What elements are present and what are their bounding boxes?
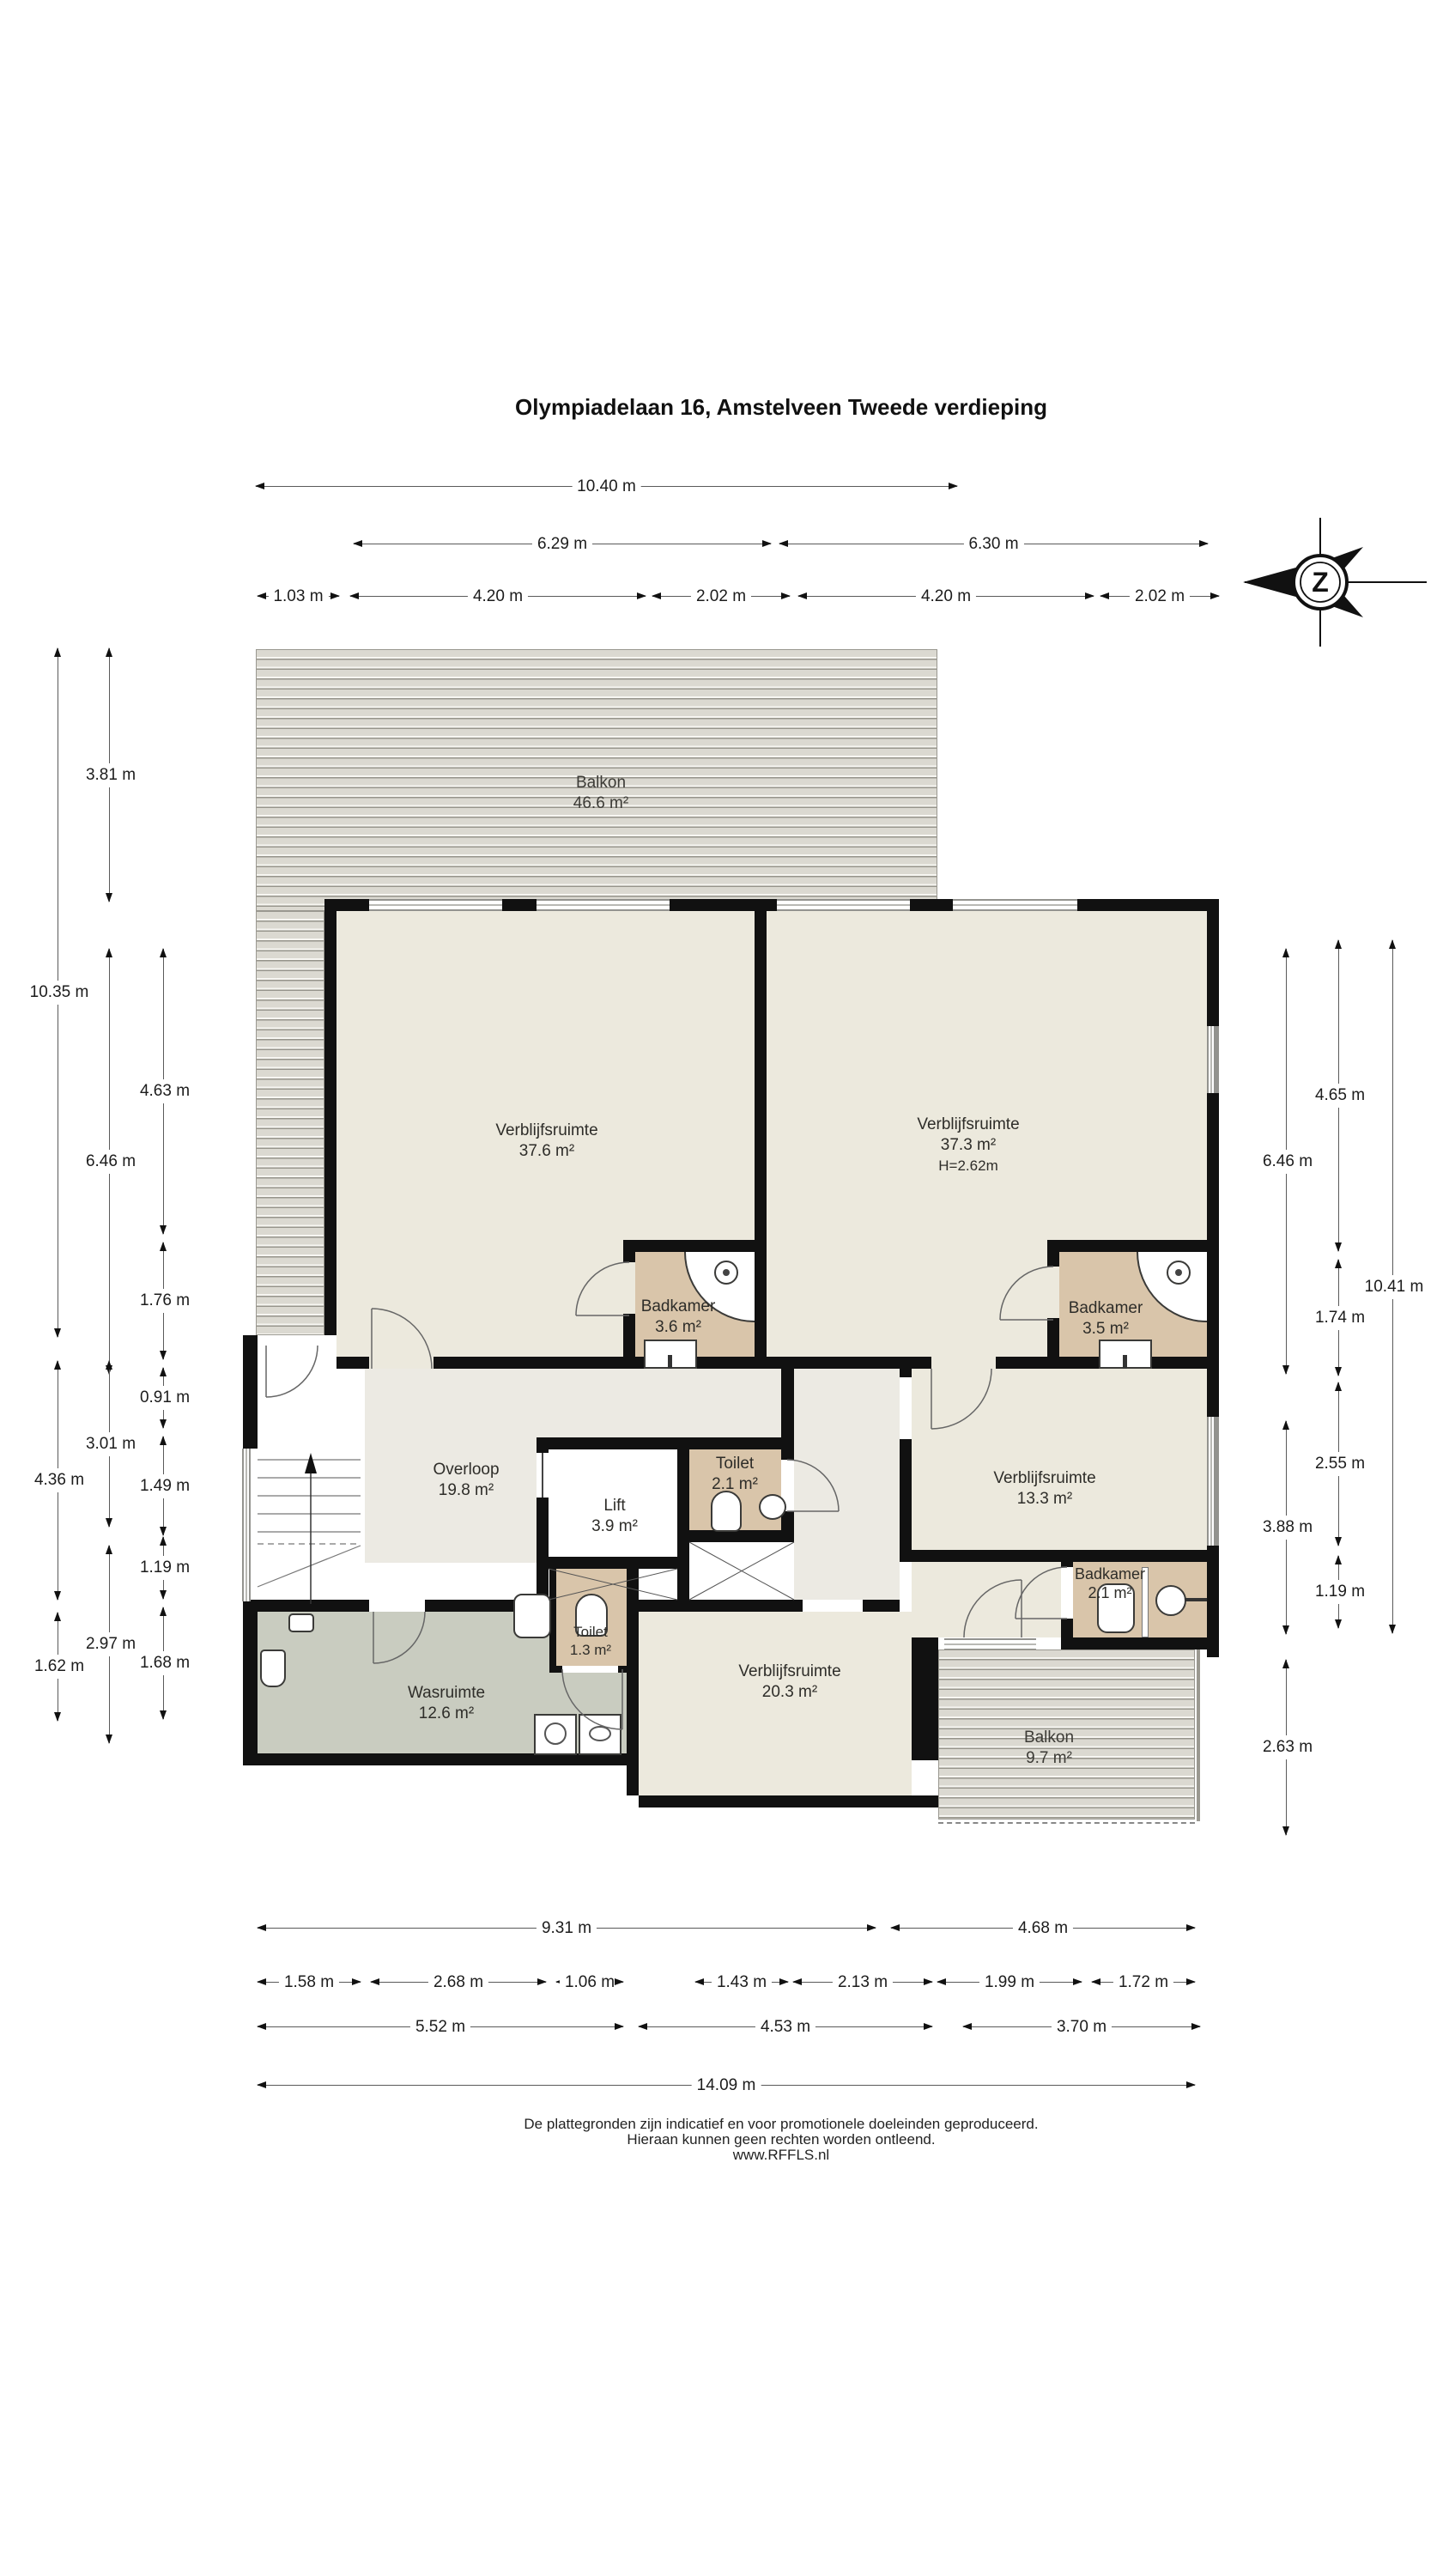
dimension-bottom: 3.70 m: [963, 2026, 1200, 2027]
title-address: Olympiadelaan 16, Amstelveen: [515, 394, 842, 420]
dimension-bottom: 1.06 m: [556, 1982, 623, 1983]
wall: [900, 1369, 912, 1377]
dimension-bottom: 9.31 m: [258, 1928, 876, 1929]
wall: [689, 1530, 794, 1542]
washbasin-icon: [1155, 1585, 1186, 1616]
wall: [1061, 1562, 1073, 1567]
room-overloop-east: [794, 1369, 900, 1600]
dimension-top: 6.29 m: [354, 544, 771, 544]
dimension-top: 4.20 m: [350, 596, 646, 597]
dimension-right: 10.41 m: [1392, 940, 1393, 1633]
wall: [243, 1600, 369, 1612]
wall: [1047, 1240, 1219, 1252]
dimension-left: 1.19 m: [163, 1537, 164, 1599]
wall: [900, 1550, 1219, 1562]
room-label-lift: Lift3.9 m²: [591, 1496, 638, 1537]
dimension-left: 0.91 m: [163, 1368, 164, 1428]
dimension-bottom: 4.68 m: [891, 1928, 1195, 1929]
dimension-top: 6.30 m: [779, 544, 1208, 544]
room-label-overloop: Overloop19.8 m²: [433, 1460, 499, 1501]
dimension-left: 1.62 m: [58, 1613, 58, 1721]
lift-door: [542, 1453, 543, 1498]
title-floor: Tweede verdieping: [848, 394, 1047, 420]
wall: [1061, 1637, 1219, 1649]
floorplan-page: Olympiadelaan 16, Amstelveen Tweede verd…: [0, 0, 1449, 2576]
page-title: Olympiadelaan 16, Amstelveen Tweede verd…: [515, 393, 1047, 422]
shower-drain-icon: [1175, 1269, 1182, 1276]
dimension-bottom: 1.43 m: [695, 1982, 788, 1983]
wall: [639, 1600, 803, 1612]
balcony-rail-right: [1197, 1649, 1200, 1821]
shower-drain-icon: [723, 1269, 730, 1276]
room-label-balkon-top: Balkon46.6 m²: [573, 773, 628, 814]
balcony-left-deck: [256, 911, 324, 1335]
sliding-door: [944, 1638, 1036, 1649]
dimension-bottom: 1.72 m: [1092, 1982, 1195, 1983]
room-label-badkamer-3-5: Badkamer3.5 m²: [1069, 1298, 1143, 1340]
compass: Z: [1236, 511, 1434, 657]
disclaimer-line2: Hieraan kunnen geen rechten worden ontle…: [524, 2132, 1038, 2148]
wall: [689, 1437, 794, 1449]
wall: [900, 1439, 912, 1562]
wall: [1047, 1318, 1059, 1369]
dimension-left: 6.46 m: [109, 949, 110, 1374]
dimension-top: 2.02 m: [652, 596, 790, 597]
dimension-left: 4.63 m: [163, 949, 164, 1234]
wall: [243, 1753, 639, 1765]
dimension-left: 4.36 m: [58, 1361, 58, 1600]
room-label-verblijfsruimte-37-6: Verblijfsruimte37.6 m²: [495, 1121, 597, 1162]
washbasin-icon: [513, 1594, 551, 1638]
wall: [618, 1666, 639, 1673]
wall: [863, 1600, 900, 1612]
window: [1207, 1417, 1219, 1546]
compass-letter: Z: [1312, 567, 1329, 598]
wall: [627, 1569, 639, 1673]
dimension-top: 4.20 m: [798, 596, 1094, 597]
dimension-left: 1.68 m: [163, 1607, 164, 1719]
wall: [623, 1240, 767, 1252]
toilet-icon: [260, 1649, 286, 1687]
dimension-bottom: 14.09 m: [258, 2085, 1195, 2086]
window: [242, 1449, 251, 1601]
room-label-badkamer-2-1: Badkamer2.1 m²: [1075, 1564, 1145, 1602]
window: [953, 899, 1077, 911]
wall: [623, 1252, 635, 1262]
dimension-right: 1.74 m: [1338, 1260, 1339, 1376]
stairs-direction-arrow-icon: [305, 1453, 317, 1473]
disclaimer-line1: De plattegronden zijn indicatief en voor…: [524, 2117, 1038, 2132]
wall: [677, 1569, 689, 1600]
window: [369, 899, 502, 911]
dimension-right: 1.19 m: [1338, 1556, 1339, 1628]
dimension-left: 3.01 m: [109, 1361, 110, 1527]
dryer-door-icon: [589, 1726, 611, 1741]
compass-arrow: [1243, 560, 1324, 605]
wall: [627, 1673, 639, 1795]
tap-icon: [668, 1355, 672, 1369]
dimension-top: 2.02 m: [1100, 596, 1219, 597]
room-label-verblijfsruimte-20-3: Verblijfsruimte20.3 m²: [738, 1662, 840, 1703]
room-label-verblijfsruimte-13-3: Verblijfsruimte13.3 m²: [993, 1468, 1095, 1510]
room-label-balkon-9-7: Balkon9.7 m²: [1024, 1728, 1074, 1769]
room-label-verblijfsruimte-37-3: Verblijfsruimte37.3 m²H=2.62m: [917, 1115, 1019, 1176]
dimension-left: 10.35 m: [58, 648, 58, 1337]
dimension-bottom: 2.68 m: [371, 1982, 546, 1983]
washbasin-icon: [759, 1494, 786, 1520]
disclaimer-url: www.RFFLS.nl: [524, 2148, 1038, 2163]
disclaimer: De plattegronden zijn indicatief en voor…: [524, 2117, 1038, 2163]
washing-machine-drum-icon: [544, 1722, 567, 1745]
room-label-toilet-1-3: Toilet1.3 m²: [570, 1623, 611, 1659]
dimension-bottom: 5.52 m: [258, 2026, 623, 2027]
dimension-right: 3.88 m: [1286, 1421, 1287, 1634]
wall: [243, 1601, 258, 1765]
room-verblijfsruimte-13-3: [912, 1369, 1207, 1550]
washbasin-icon: [288, 1613, 314, 1632]
dimension-right: 6.46 m: [1286, 949, 1287, 1374]
tap-icon: [1185, 1598, 1207, 1601]
room-verblijfsruimte-20-3: [639, 1612, 912, 1795]
dimension-left: 2.97 m: [109, 1546, 110, 1743]
dimension-right: 2.55 m: [1338, 1382, 1339, 1546]
toilet-icon: [711, 1491, 742, 1532]
dimension-left: 1.49 m: [163, 1437, 164, 1535]
wall: [639, 1795, 938, 1807]
window: [537, 899, 670, 911]
wall: [336, 1357, 369, 1369]
tap-icon: [1123, 1355, 1127, 1369]
dimension-bottom: 1.58 m: [258, 1982, 361, 1983]
room-balkon-entry: [912, 1562, 1061, 1637]
room-label-wasruimte: Wasruimte12.6 m²: [408, 1683, 485, 1724]
dimension-right: 2.63 m: [1286, 1660, 1287, 1835]
dimension-bottom: 1.99 m: [937, 1982, 1082, 1983]
dimension-right: 4.65 m: [1338, 940, 1339, 1251]
stairs: [258, 1460, 361, 1587]
dimension-left: 3.81 m: [109, 648, 110, 902]
window: [777, 899, 910, 911]
wall: [755, 911, 767, 1369]
wall: [781, 1369, 794, 1460]
room-wasruimte: [258, 1612, 549, 1753]
balcony-rail-dashed: [938, 1822, 1195, 1824]
wall: [549, 1666, 562, 1673]
wall: [623, 1314, 635, 1369]
wall: [912, 1637, 938, 1760]
wall: [1047, 1252, 1059, 1267]
dimension-top: 10.40 m: [256, 486, 957, 487]
room-label-toilet-2-1: Toilet2.1 m²: [712, 1454, 758, 1495]
room-label-badkamer-3-6: Badkamer3.6 m²: [641, 1297, 716, 1338]
dimension-bottom: 2.13 m: [793, 1982, 932, 1983]
dimension-top: 1.03 m: [258, 596, 339, 597]
dimension-bottom: 4.53 m: [639, 2026, 932, 2027]
wall: [324, 899, 336, 1335]
window: [1207, 1026, 1219, 1093]
dimension-left: 1.76 m: [163, 1242, 164, 1359]
wall: [243, 1335, 258, 1449]
